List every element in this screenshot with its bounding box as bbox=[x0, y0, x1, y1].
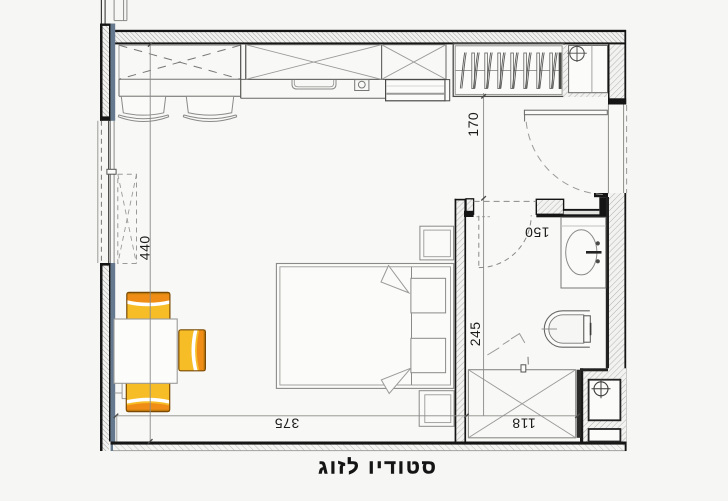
svg-text:170: 170 bbox=[465, 112, 481, 137]
svg-text:118: 118 bbox=[512, 416, 536, 432]
svg-text:סטודיו לזוג: סטודיו לזוג bbox=[318, 456, 437, 478]
svg-text:245: 245 bbox=[467, 321, 483, 346]
svg-text:440: 440 bbox=[136, 235, 152, 260]
svg-text:150: 150 bbox=[525, 225, 550, 241]
svg-text:375: 375 bbox=[274, 416, 299, 432]
